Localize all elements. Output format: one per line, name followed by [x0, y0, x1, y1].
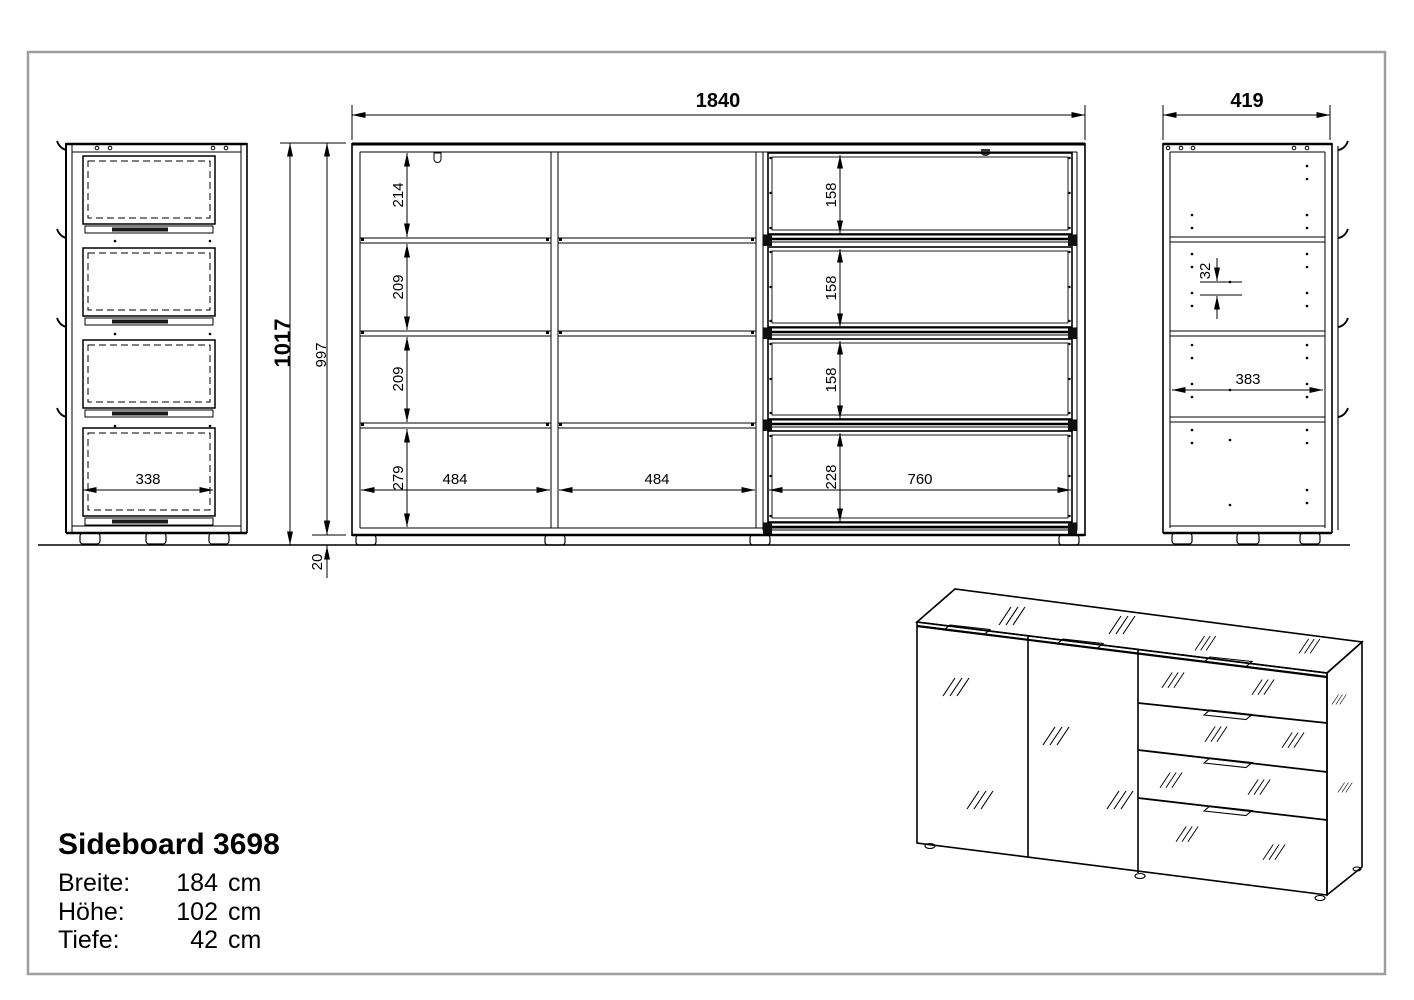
- dim-label-row-4: 279: [390, 465, 407, 490]
- dim-label-depth: 419: [1230, 90, 1263, 112]
- cam-lock-icon: [434, 153, 441, 163]
- handles: [944, 625, 1252, 816]
- spec-row-tiefe: Tiefe: 42 cm: [58, 926, 280, 955]
- dim-label-row-3: 209: [390, 366, 407, 391]
- dim-label-drawer-4: 228: [823, 464, 840, 489]
- product-title: Sideboard 3698: [58, 828, 280, 862]
- dim-label-total-height: 1017: [270, 319, 295, 368]
- dim-label-row-2: 209: [390, 274, 407, 299]
- dim-label-drawer-3: 158: [823, 367, 840, 392]
- handle-profiles: [1338, 141, 1348, 417]
- dim-label-drawer-depth: 338: [135, 471, 160, 488]
- spec-value: 42: [170, 926, 218, 955]
- spec-value: 102: [170, 898, 218, 927]
- glass-hatch-marks: [943, 607, 1352, 860]
- spec-label: Tiefe:: [58, 926, 170, 955]
- dim-label-shelf-depth: 383: [1235, 371, 1260, 388]
- dim-label-width: 1840: [696, 90, 741, 112]
- title-block: Sideboard 3698 Breite: 184 cm Höhe: 102 …: [58, 828, 280, 955]
- spec-row-breite: Breite: 184 cm: [58, 869, 280, 898]
- dim-label-hole-spacing: 32: [1197, 263, 1214, 280]
- dim-label-row-1: 214: [390, 182, 407, 207]
- dim-label-body-height: 997: [313, 342, 330, 367]
- spec-unit: cm: [228, 898, 261, 927]
- spec-value: 184: [170, 869, 218, 898]
- drawer-section-profile: [83, 156, 215, 525]
- spec-unit: cm: [228, 926, 261, 955]
- dim-label-compartment-2: 484: [644, 471, 669, 488]
- dim-label-compartment-1: 484: [442, 471, 467, 488]
- spec-unit: cm: [228, 869, 261, 898]
- technical-drawing-page: 1840 419 1017 997 20 214 209 209 279 158…: [0, 0, 1414, 1000]
- right-side-view: [1163, 141, 1348, 544]
- dim-label-drawer-1: 158: [823, 182, 840, 207]
- spec-row-hoehe: Höhe: 102 cm: [58, 898, 280, 927]
- isometric-view: [917, 589, 1362, 901]
- spec-label: Höhe:: [58, 898, 170, 927]
- dim-label-plinth-height: 20: [309, 554, 326, 571]
- dim-label-drawer-width: 760: [907, 471, 932, 488]
- dim-label-drawer-2: 158: [823, 275, 840, 300]
- spec-label: Breite:: [58, 869, 170, 898]
